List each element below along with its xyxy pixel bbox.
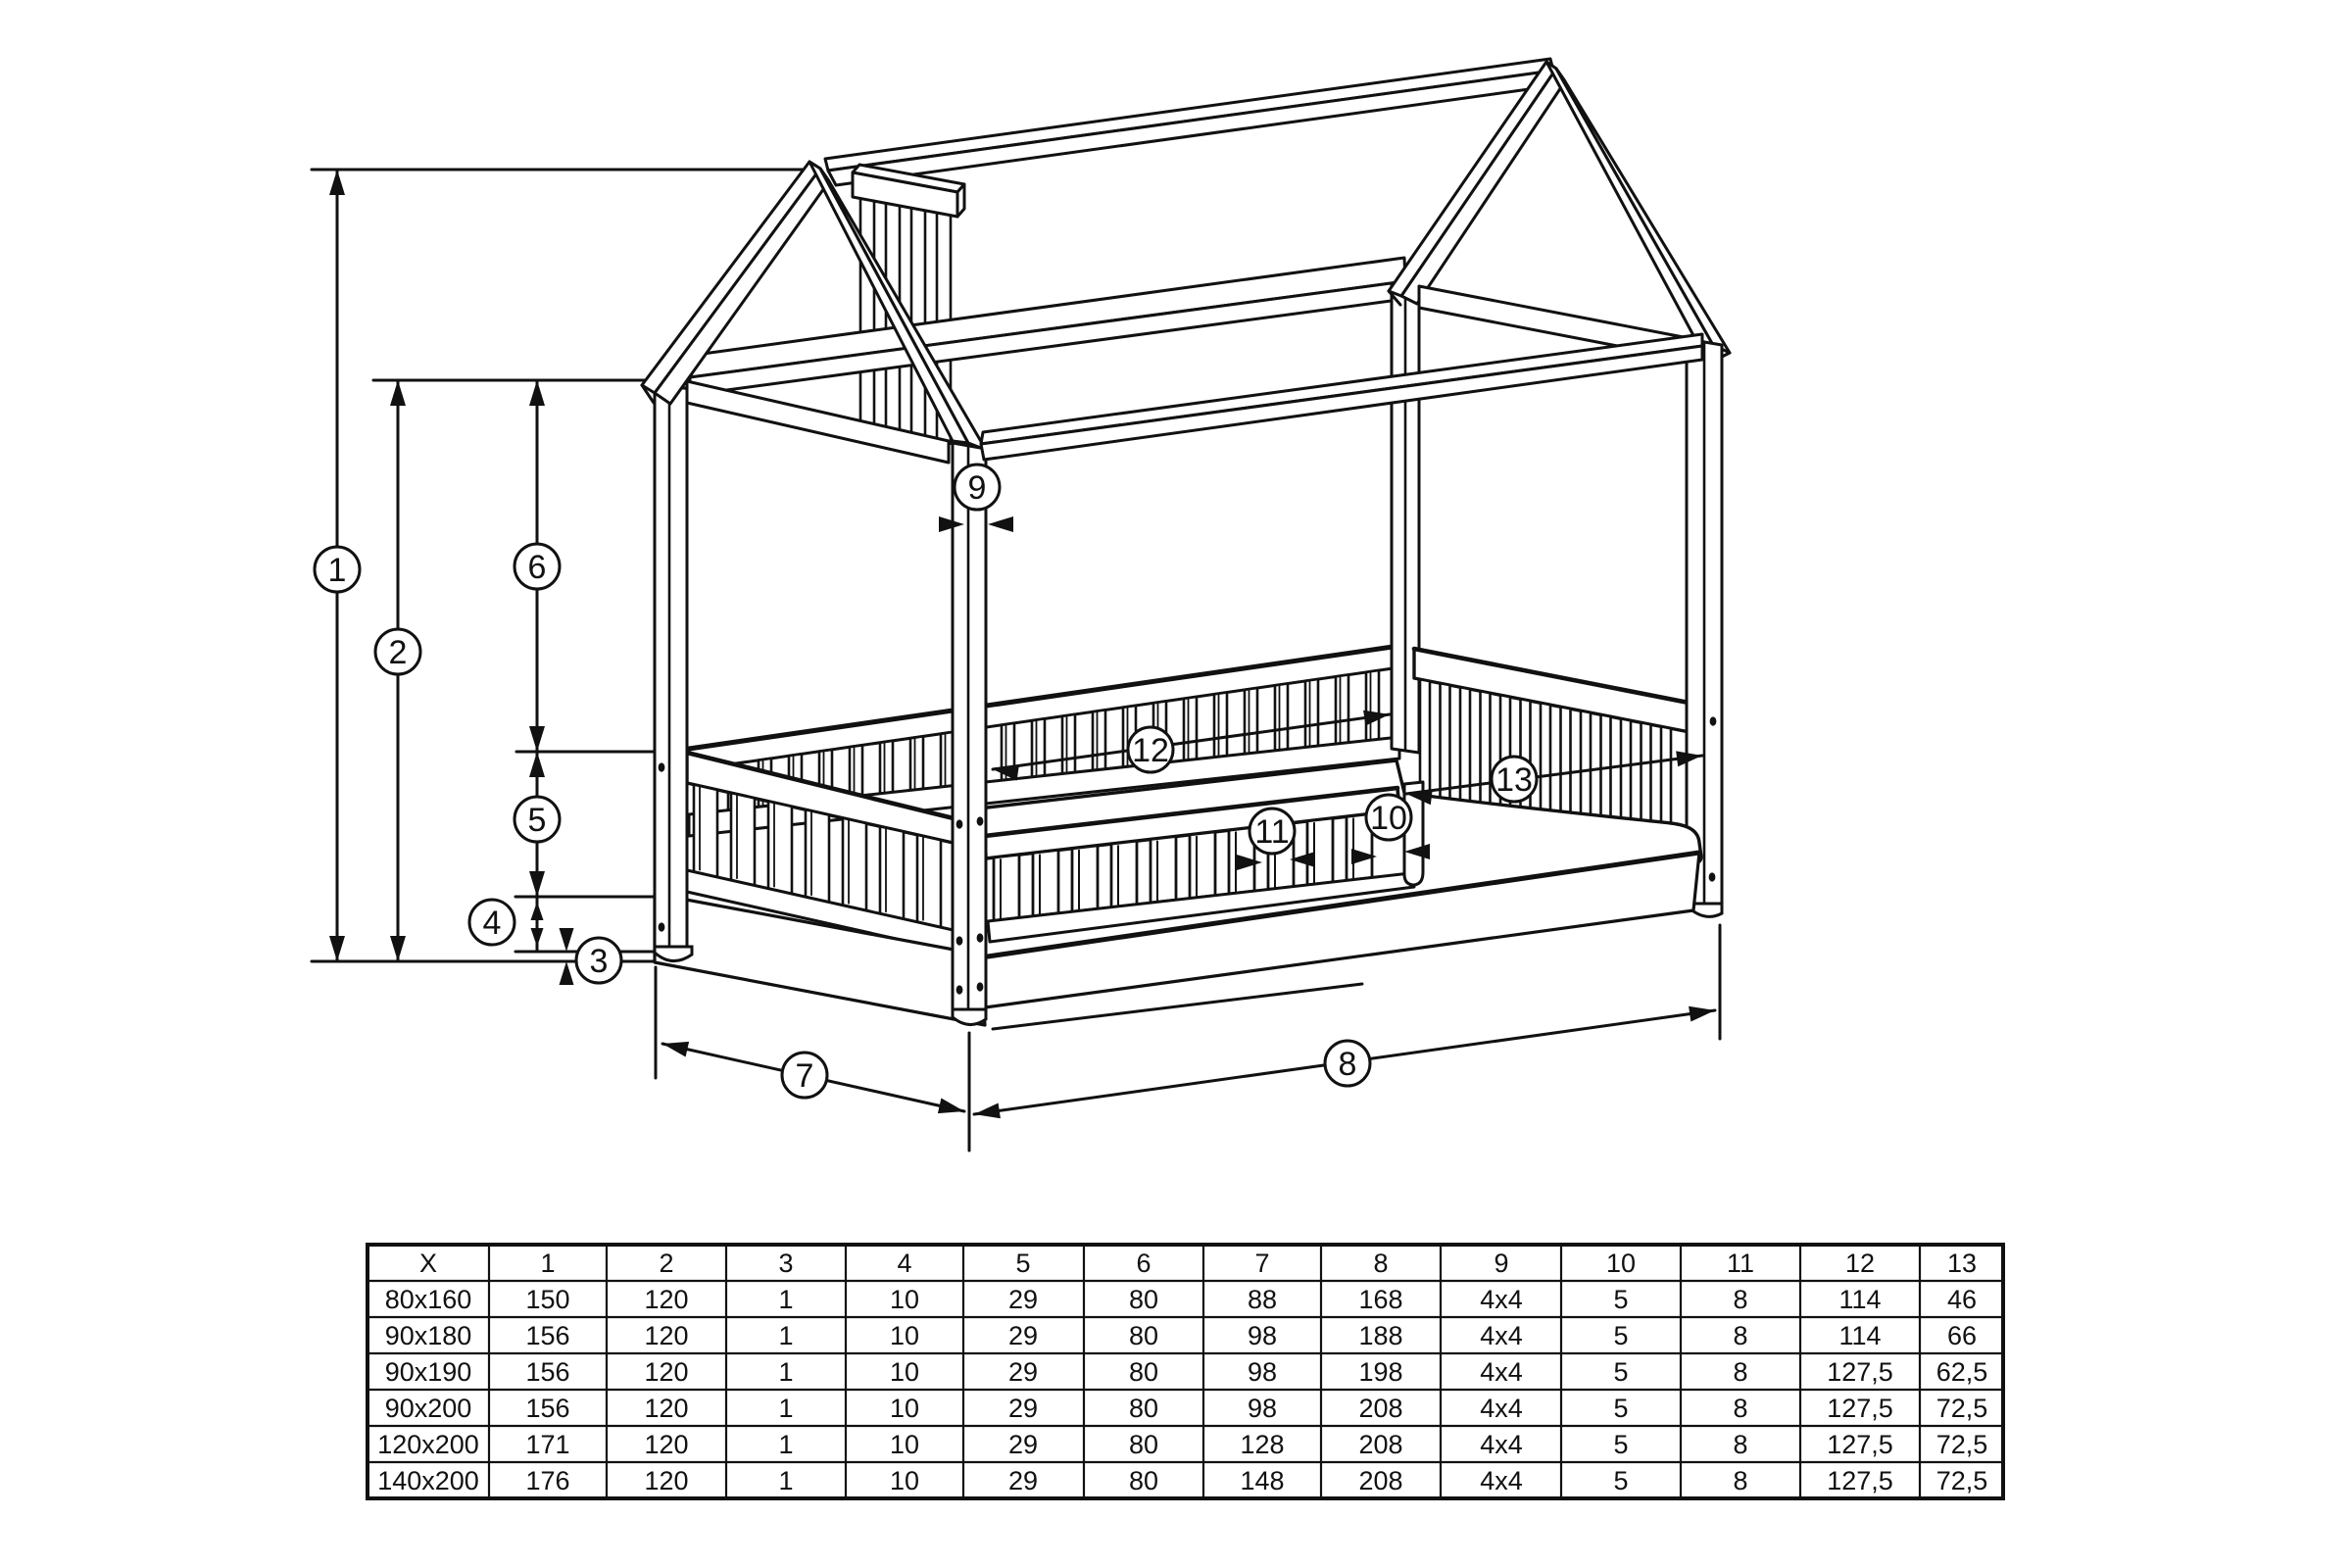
svg-text:5: 5: [528, 802, 547, 839]
svg-text:10: 10: [890, 1466, 919, 1495]
svg-text:4x4: 4x4: [1480, 1321, 1523, 1350]
svg-text:8: 8: [1733, 1321, 1747, 1350]
svg-text:10: 10: [890, 1321, 919, 1350]
svg-text:72,5: 72,5: [1936, 1394, 1988, 1423]
svg-text:4x4: 4x4: [1480, 1430, 1523, 1459]
svg-text:5: 5: [1015, 1249, 1030, 1278]
svg-text:1: 1: [540, 1249, 555, 1278]
svg-text:4: 4: [897, 1249, 911, 1278]
svg-text:80: 80: [1129, 1430, 1158, 1459]
svg-text:176: 176: [525, 1466, 569, 1495]
svg-text:3: 3: [778, 1249, 793, 1278]
svg-text:127,5: 127,5: [1827, 1357, 1893, 1387]
svg-text:120: 120: [644, 1321, 688, 1350]
svg-text:120: 120: [644, 1430, 688, 1459]
svg-text:4x4: 4x4: [1480, 1357, 1523, 1387]
svg-text:8: 8: [1373, 1249, 1388, 1278]
svg-text:8: 8: [1733, 1394, 1747, 1423]
svg-text:80: 80: [1129, 1394, 1158, 1423]
svg-text:11: 11: [1254, 813, 1289, 851]
svg-text:29: 29: [1008, 1285, 1038, 1314]
svg-text:8: 8: [1733, 1285, 1747, 1314]
svg-text:5: 5: [1613, 1466, 1628, 1495]
svg-text:1: 1: [778, 1466, 793, 1495]
svg-text:127,5: 127,5: [1827, 1466, 1893, 1495]
svg-text:6: 6: [528, 549, 547, 586]
svg-text:148: 148: [1240, 1466, 1284, 1495]
svg-text:5: 5: [1613, 1357, 1628, 1387]
svg-text:10: 10: [1606, 1249, 1636, 1278]
svg-text:1: 1: [778, 1321, 793, 1350]
svg-text:7: 7: [1254, 1249, 1269, 1278]
svg-text:208: 208: [1358, 1394, 1402, 1423]
svg-text:120: 120: [644, 1357, 688, 1387]
svg-text:80x160: 80x160: [385, 1285, 472, 1314]
svg-text:1: 1: [778, 1357, 793, 1387]
svg-text:10: 10: [890, 1430, 919, 1459]
svg-text:12: 12: [1845, 1249, 1875, 1278]
svg-text:29: 29: [1008, 1430, 1038, 1459]
svg-text:46: 46: [1947, 1285, 1977, 1314]
svg-text:150: 150: [525, 1285, 569, 1314]
svg-text:120: 120: [644, 1394, 688, 1423]
svg-text:88: 88: [1248, 1285, 1277, 1314]
svg-text:9: 9: [968, 469, 987, 507]
svg-text:90x190: 90x190: [385, 1357, 472, 1387]
svg-text:4: 4: [483, 905, 502, 942]
svg-text:1: 1: [778, 1285, 793, 1314]
svg-text:156: 156: [525, 1394, 569, 1423]
svg-text:120x200: 120x200: [377, 1430, 479, 1459]
svg-text:13: 13: [1947, 1249, 1977, 1278]
svg-text:5: 5: [1613, 1430, 1628, 1459]
svg-text:2: 2: [659, 1249, 673, 1278]
svg-text:80: 80: [1129, 1321, 1158, 1350]
svg-text:80: 80: [1129, 1357, 1158, 1387]
svg-text:168: 168: [1358, 1285, 1402, 1314]
svg-text:2: 2: [389, 634, 408, 671]
svg-text:90x200: 90x200: [385, 1394, 472, 1423]
svg-text:3: 3: [590, 943, 609, 980]
svg-text:80: 80: [1129, 1466, 1158, 1495]
svg-text:8: 8: [1733, 1357, 1747, 1387]
svg-text:29: 29: [1008, 1321, 1038, 1350]
svg-text:10: 10: [890, 1394, 919, 1423]
svg-text:114: 114: [1838, 1285, 1881, 1314]
svg-text:156: 156: [525, 1357, 569, 1387]
svg-text:8: 8: [1339, 1046, 1357, 1083]
svg-text:208: 208: [1358, 1466, 1402, 1495]
svg-text:1: 1: [328, 552, 347, 589]
svg-text:62,5: 62,5: [1936, 1357, 1988, 1387]
svg-text:8: 8: [1733, 1430, 1747, 1459]
svg-text:29: 29: [1008, 1394, 1038, 1423]
svg-text:128: 128: [1240, 1430, 1284, 1459]
svg-text:66: 66: [1947, 1321, 1977, 1350]
svg-text:5: 5: [1613, 1394, 1628, 1423]
svg-text:4x4: 4x4: [1480, 1466, 1523, 1495]
svg-text:29: 29: [1008, 1466, 1038, 1495]
svg-text:114: 114: [1838, 1321, 1881, 1350]
svg-text:120: 120: [644, 1285, 688, 1314]
svg-text:72,5: 72,5: [1936, 1430, 1988, 1459]
svg-text:127,5: 127,5: [1827, 1430, 1893, 1459]
svg-text:12: 12: [1132, 732, 1169, 769]
svg-text:127,5: 127,5: [1827, 1394, 1893, 1423]
svg-text:11: 11: [1727, 1249, 1754, 1278]
svg-text:1: 1: [778, 1430, 793, 1459]
svg-text:1: 1: [778, 1394, 793, 1423]
svg-text:4x4: 4x4: [1480, 1394, 1523, 1423]
svg-text:4x4: 4x4: [1480, 1285, 1523, 1314]
svg-text:6: 6: [1136, 1249, 1151, 1278]
svg-text:5: 5: [1613, 1285, 1628, 1314]
svg-text:72,5: 72,5: [1936, 1466, 1988, 1495]
svg-text:208: 208: [1358, 1430, 1402, 1459]
svg-text:140x200: 140x200: [377, 1466, 479, 1495]
svg-text:10: 10: [1370, 800, 1407, 837]
svg-text:10: 10: [890, 1285, 919, 1314]
svg-text:8: 8: [1733, 1466, 1747, 1495]
svg-text:98: 98: [1248, 1357, 1277, 1387]
svg-text:5: 5: [1613, 1321, 1628, 1350]
svg-text:7: 7: [796, 1057, 814, 1095]
svg-text:9: 9: [1494, 1249, 1508, 1278]
svg-text:90x180: 90x180: [385, 1321, 472, 1350]
svg-text:13: 13: [1495, 761, 1533, 799]
svg-text:156: 156: [525, 1321, 569, 1350]
svg-text:198: 198: [1358, 1357, 1402, 1387]
svg-text:188: 188: [1358, 1321, 1402, 1350]
svg-text:98: 98: [1248, 1321, 1277, 1350]
svg-text:10: 10: [890, 1357, 919, 1387]
svg-text:29: 29: [1008, 1357, 1038, 1387]
svg-text:X: X: [419, 1249, 437, 1278]
svg-text:171: 171: [525, 1430, 569, 1459]
svg-text:80: 80: [1129, 1285, 1158, 1314]
svg-text:98: 98: [1248, 1394, 1277, 1423]
svg-text:120: 120: [644, 1466, 688, 1495]
